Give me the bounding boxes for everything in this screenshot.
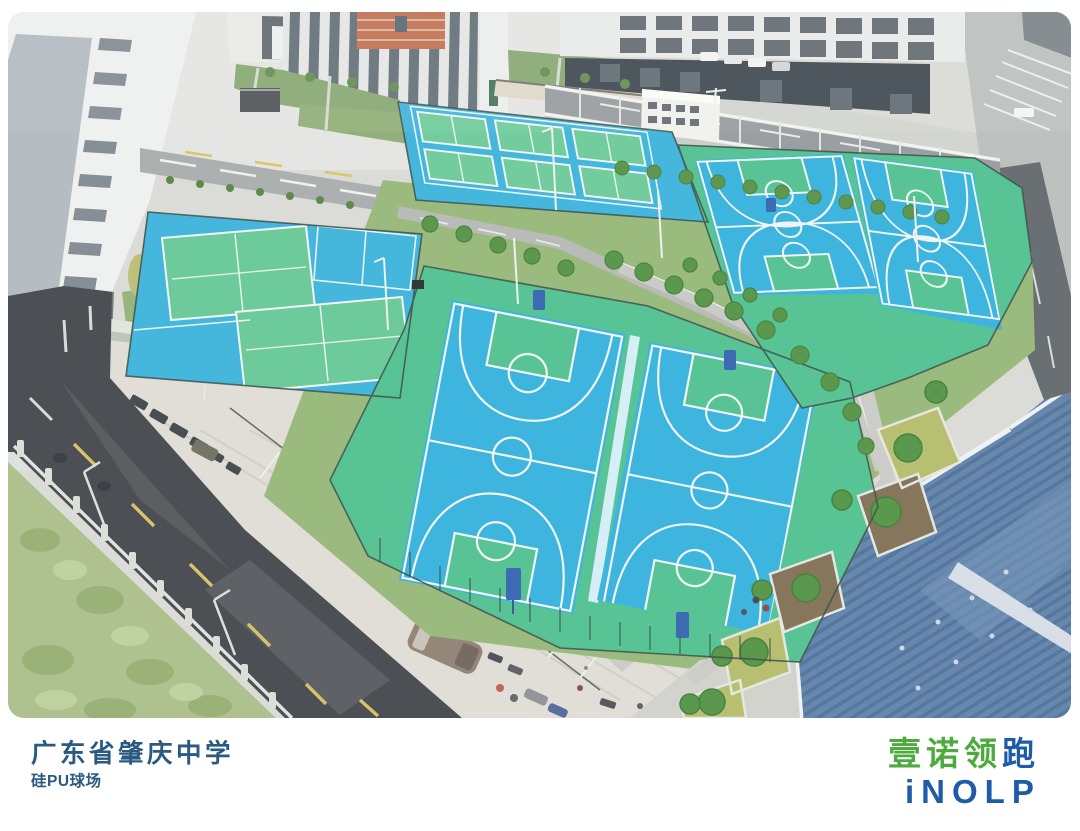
svg-text:壹诺领跑: 壹诺领跑 [888,735,1040,772]
svg-text:硅PU球场: 硅PU球场 [31,771,102,790]
svg-text:广东省肇庆中学: 广东省肇庆中学 [31,739,234,768]
svg-text:iNOLP: iNOLP [905,773,1041,810]
